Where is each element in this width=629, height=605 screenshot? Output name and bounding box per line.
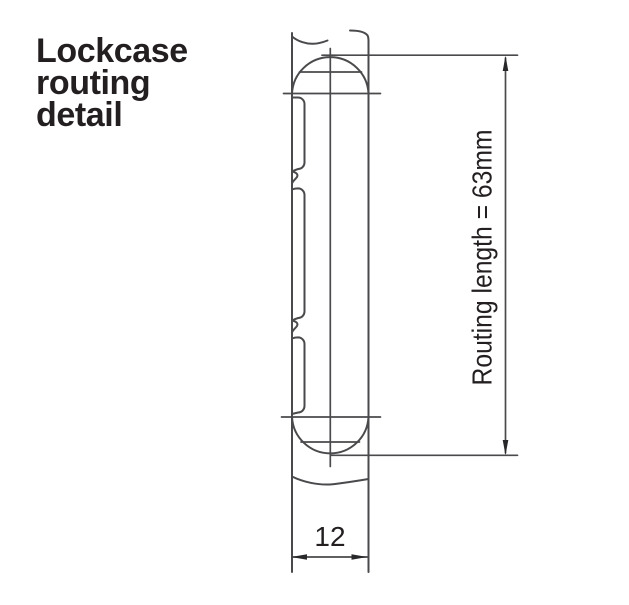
break-line-bottom bbox=[292, 477, 369, 485]
width-dim-arrow-left bbox=[291, 554, 307, 560]
routing-right-edge bbox=[350, 31, 369, 573]
lockcase-tab-2 bbox=[292, 188, 305, 320]
width-dim-arrow-right bbox=[352, 554, 368, 560]
length-dim-arrow-up bbox=[503, 56, 509, 71]
lockcase-routing-figure: Lockcase routing detail Rout bbox=[0, 0, 629, 605]
lockcase-tab-1 bbox=[292, 98, 305, 172]
lockcase-tab-3 bbox=[292, 337, 305, 414]
routing-length-label: Routing length = 63mm bbox=[467, 130, 498, 386]
routing-drawing: Routing length = 63mm 12 bbox=[0, 0, 629, 605]
break-line-top bbox=[292, 37, 328, 44]
length-dim-arrow-down bbox=[503, 440, 509, 455]
width-label: 12 bbox=[314, 521, 345, 552]
